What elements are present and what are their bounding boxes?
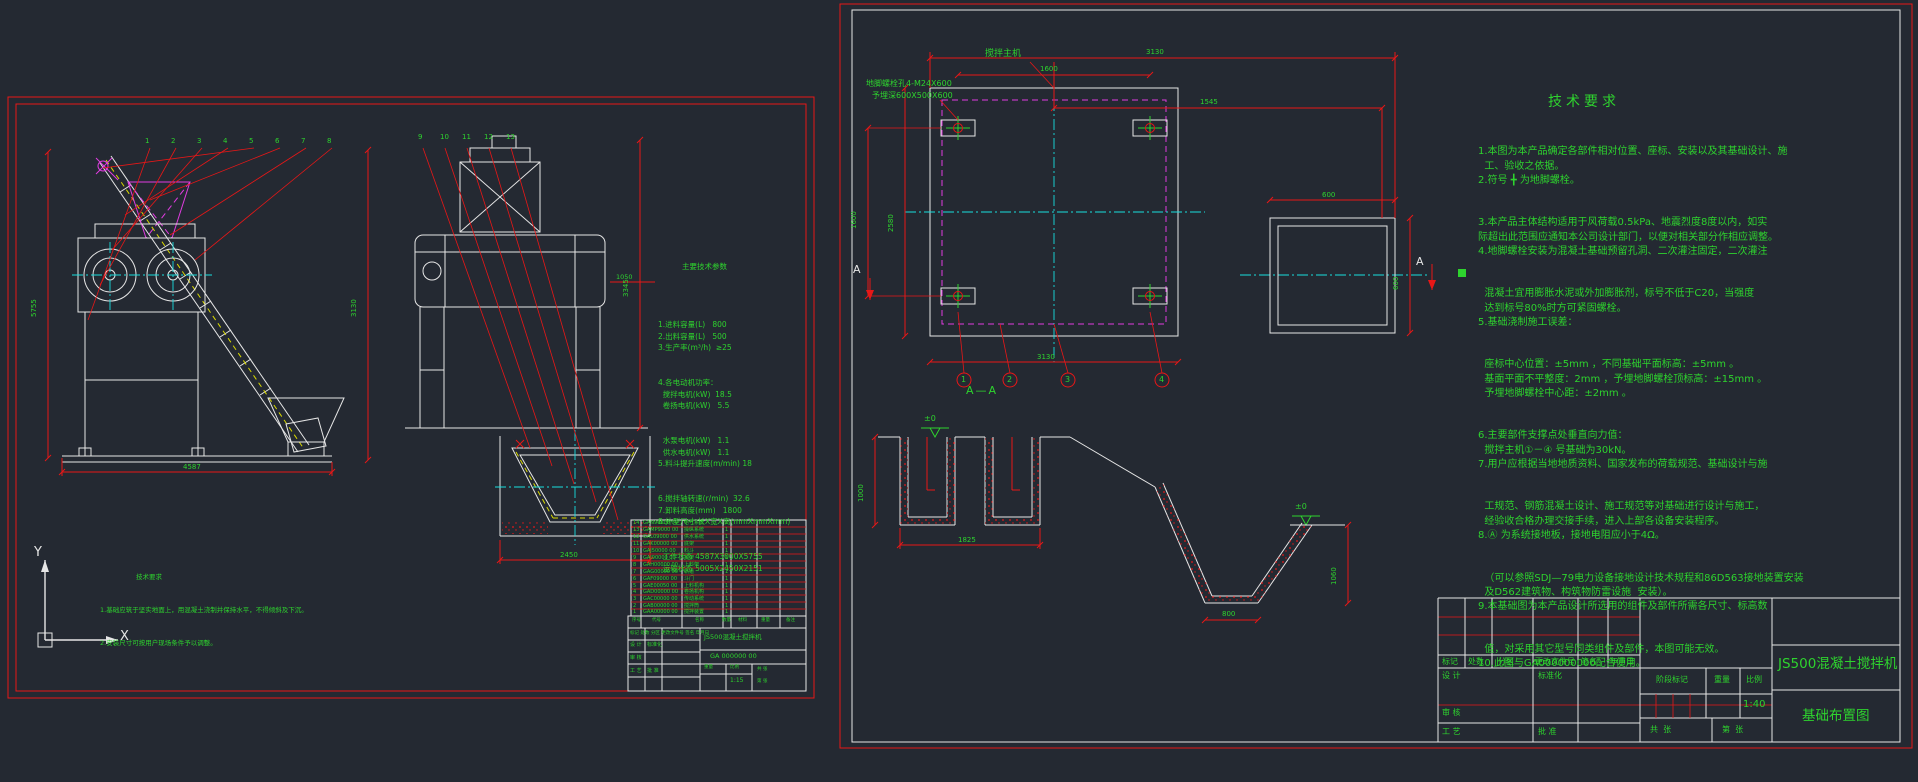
dim-label: 5755: [31, 299, 38, 317]
dim-label: 1050: [616, 274, 633, 281]
machine-label: 搅拌主机: [985, 50, 1021, 59]
dim-label: 1825: [958, 537, 976, 544]
left-notes: 技术要求 1.基础应筑于坚实地面上，用混凝土浇制并保持水平，不得倾斜及下沉。 2…: [100, 550, 308, 660]
section-letter: A: [1416, 256, 1424, 267]
dim-label: 2580: [888, 214, 895, 232]
weight-label: 重量: [1714, 676, 1730, 684]
dim-label: 800: [1222, 611, 1235, 618]
side-elevation-view: [405, 136, 655, 564]
dim-label: 2450: [560, 552, 578, 559]
product-name: JS500混凝土搅拌机: [1778, 658, 1897, 672]
dim-label: 3130: [1146, 49, 1164, 56]
parameters-title: 主要技术参数: [658, 261, 790, 273]
anchor-bolt-note: 予埋深600X500X600: [872, 92, 953, 100]
left-product-name: JS500混凝土搅拌机: [704, 634, 761, 641]
dim-label: 4587: [183, 464, 201, 471]
elevation-label: ±0: [1295, 503, 1307, 511]
drawing-title: 基础布置图: [1802, 710, 1870, 724]
section-a-a-view: [872, 428, 1351, 623]
tech-requirements: 1.本图为本产品确定各部件相对位置、座标、安装以及其基础设计、施 工、验收之依据…: [1478, 117, 1804, 685]
foundation-callout: 4: [1159, 376, 1164, 384]
front-elevation-view: [45, 147, 371, 476]
bom-table: 14GAN90000 00电气系统1 13GAMP9000 00操纵系统1 12…: [631, 520, 806, 616]
foundation-callout: 3: [1065, 376, 1070, 384]
dim-label: 3130: [351, 299, 358, 317]
left-notes-title: 技术要求: [100, 572, 308, 583]
section-letter: A: [853, 264, 861, 275]
foundation-plan-view: [865, 52, 1466, 387]
dim-label: 1600: [851, 211, 858, 229]
foundation-callout: 1: [961, 376, 966, 384]
tech-requirements-title: 技术要求: [1548, 95, 1620, 109]
stage-mark-label: 阶段标记: [1656, 676, 1688, 684]
scale-value: 1:40: [1743, 700, 1765, 710]
dim-label: 3345: [623, 279, 630, 297]
foundation-callout: 2: [1007, 376, 1012, 384]
section-title: A—A: [966, 385, 998, 396]
dim-label: 3130: [1037, 354, 1055, 361]
dim-label: 600: [1393, 277, 1400, 290]
dim-label: 600: [1322, 192, 1335, 199]
left-scale-value: 1:15: [730, 678, 743, 684]
anchor-bolt-note: 地脚螺栓孔4-M24X600: [866, 80, 952, 88]
scale-label: 比例: [1746, 676, 1762, 684]
cad-canvas: 主要技术参数 1.进料容量(L) 8002.出料容量(L) 5003.生产率(m…: [0, 0, 1918, 782]
dim-label: 1000: [858, 484, 865, 502]
dim-label: 1060: [1331, 567, 1338, 585]
dim-label: 1545: [1200, 99, 1218, 106]
elevation-label: ±0: [924, 415, 936, 423]
ucs-y-label: Y: [34, 546, 42, 559]
dim-label: 1600: [1040, 66, 1058, 73]
ucs-x-label: X: [120, 630, 129, 643]
left-drawing-number: GA 000000 00: [710, 653, 757, 660]
